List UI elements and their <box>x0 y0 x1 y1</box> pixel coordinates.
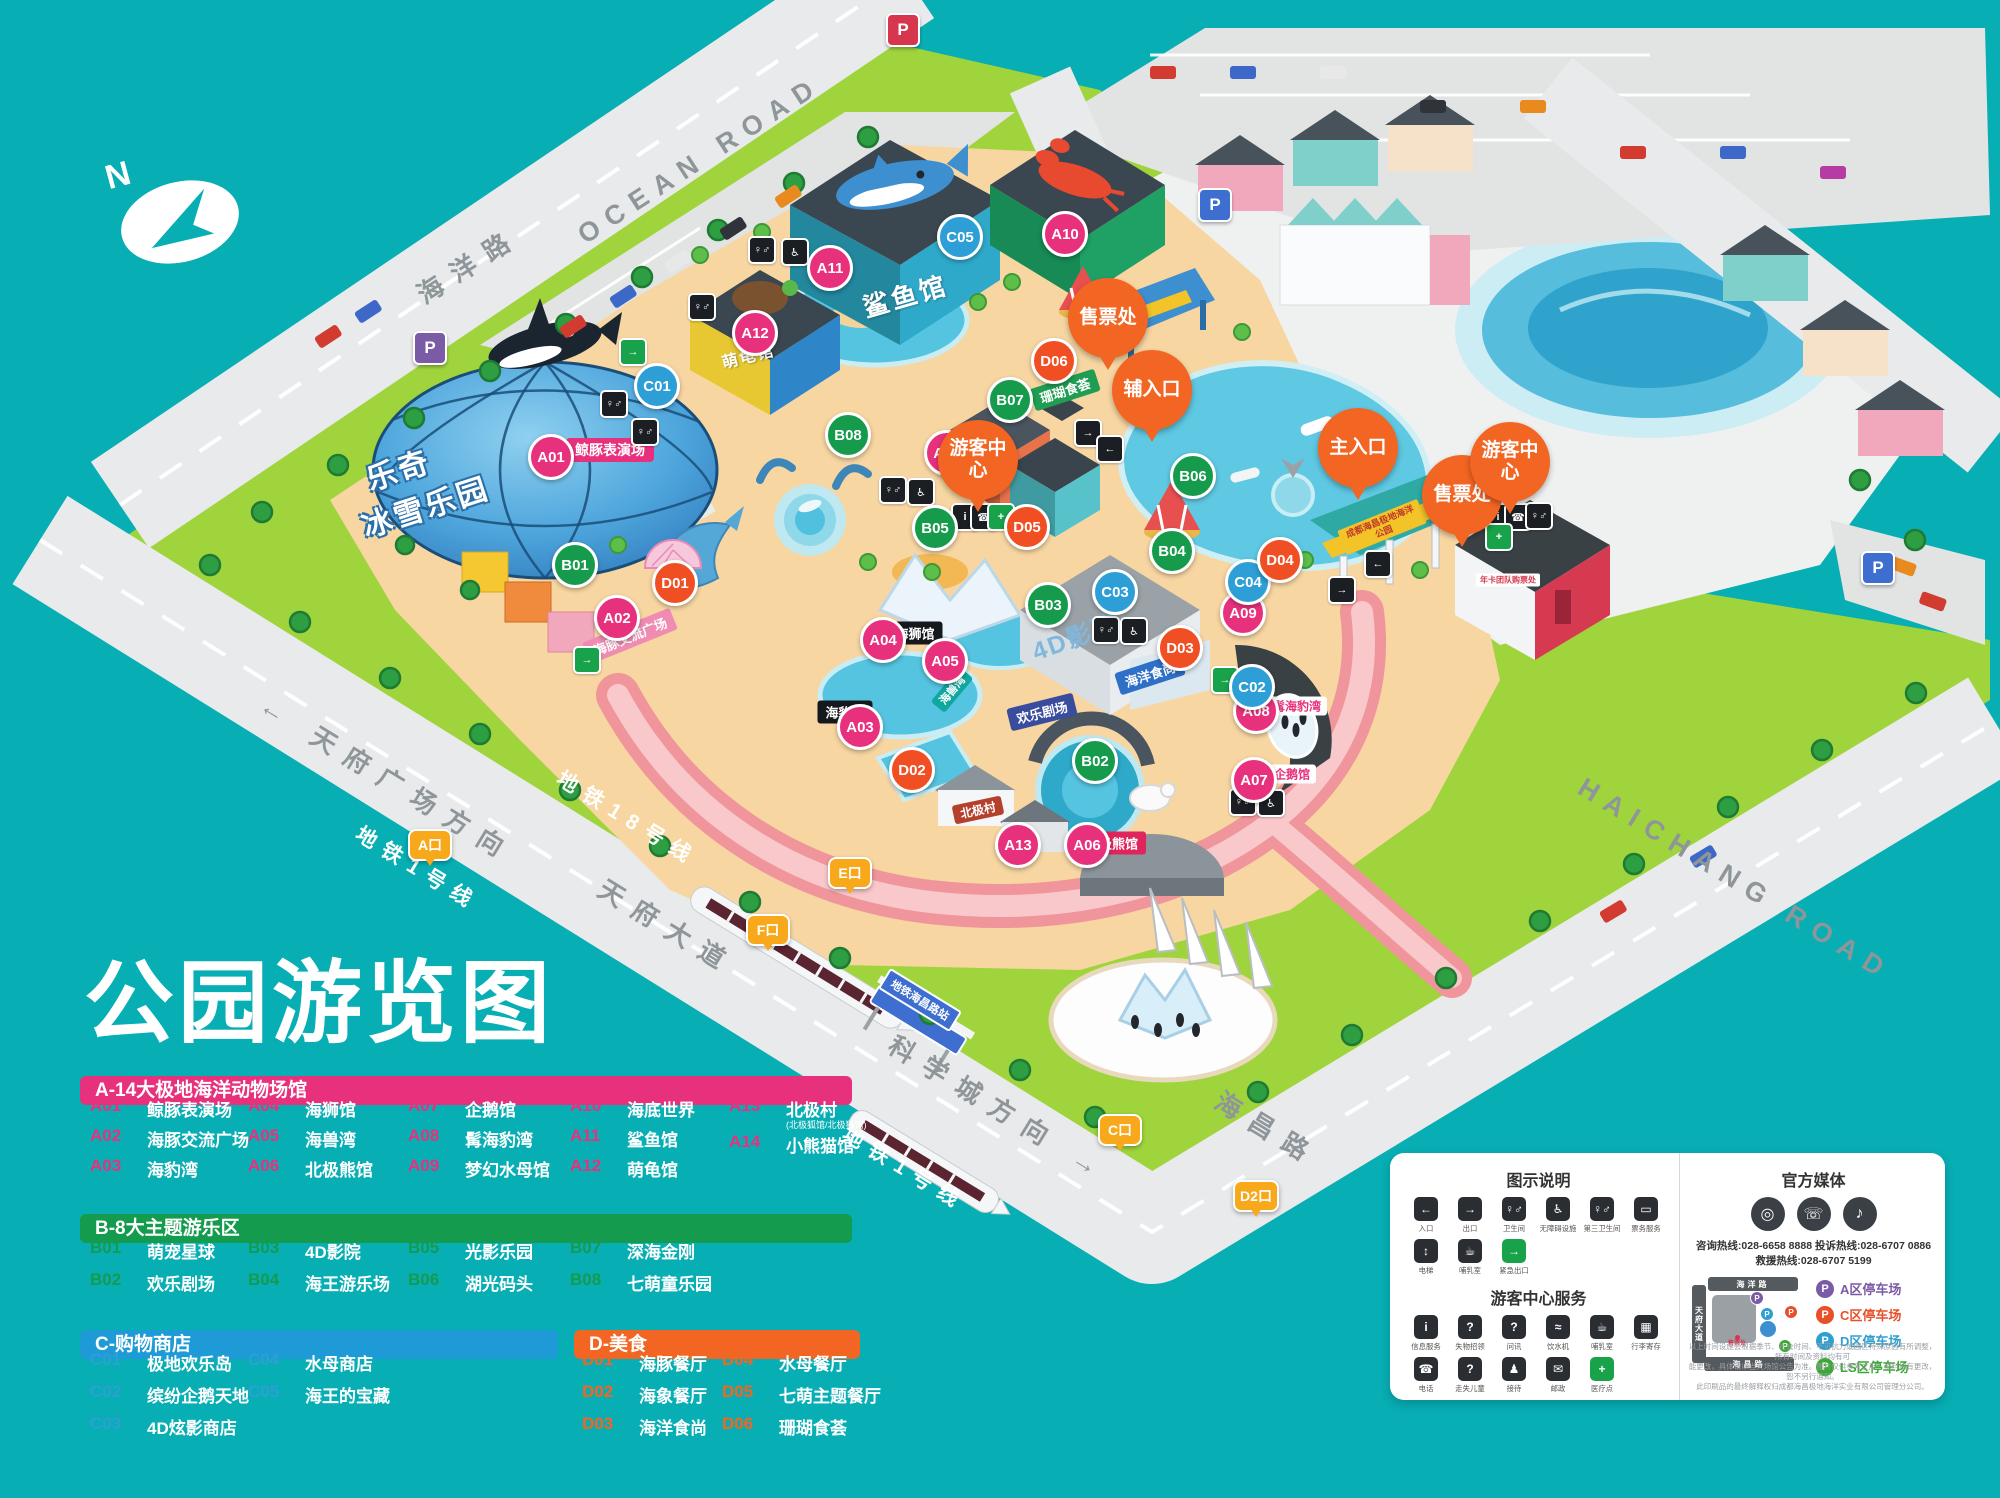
map-marker[interactable]: B04 <box>1149 528 1195 574</box>
legend-item: D01 海豚餐厅 <box>582 1350 707 1375</box>
legend-item: A11 鲨鱼馆 <box>570 1126 678 1151</box>
legend-item: A06 北极熊馆 <box>248 1156 373 1181</box>
legend-item: A03 海豹湾 <box>90 1156 198 1181</box>
map-marker[interactable]: A02 <box>594 595 640 641</box>
legend-item: D02 海象餐厅 <box>582 1382 707 1407</box>
parking-row: P A区停车场 <box>1816 1279 1909 1298</box>
legend-item: A08 髯海豹湾 <box>408 1126 533 1151</box>
legend-icon-cell: ↕ 电梯 <box>1404 1239 1448 1276</box>
service-icon-cell: + 医疗点 <box>1580 1357 1624 1394</box>
legend-item: A05 海兽湾 <box>248 1126 356 1151</box>
minimap-road-top: 海洋路 <box>1708 1277 1798 1291</box>
legend-item: A09 梦幻水母馆 <box>408 1156 550 1181</box>
map-marker[interactable]: A03 <box>837 704 883 750</box>
facility-icon: ♀♂ <box>631 418 659 446</box>
legend-icon-cell: ← 入口 <box>1404 1197 1448 1234</box>
legend-item: A14 小熊猫馆 <box>729 1132 854 1157</box>
map-marker[interactable]: B08 <box>825 412 871 458</box>
service-icon-cell: ☎ 电话 <box>1404 1357 1448 1394</box>
service-icon-cell: ≈ 饮水机 <box>1536 1315 1580 1352</box>
park-map: N OCEAN ROAD海洋路HAICHANG ROAD海昌路← 天府广场方向地… <box>0 0 2000 1498</box>
legend-item: B05 光影乐园 <box>408 1238 533 1263</box>
legend-icon-cell: ♿ 无障碍设施 <box>1536 1197 1580 1234</box>
facility-icon: ♀♂ <box>1525 502 1553 530</box>
legend-icons-grid: ← 入口 → 出口 ♀♂ 卫生间 ♿ 无障碍设施 ♀♂ 第三卫生间 ▭ 票务服务 <box>1404 1197 1673 1281</box>
social-icon[interactable]: ☏ <box>1797 1197 1831 1231</box>
map-marker[interactable]: C02 <box>1229 664 1275 710</box>
pictogram-icon: ✉ <box>1546 1357 1570 1381</box>
penguin-island <box>1051 960 1275 1080</box>
legend-item: A01 鲸豚表演场 <box>90 1096 232 1121</box>
poi-balloon[interactable]: 辅入口 <box>1112 350 1192 430</box>
legend-item: B03 4D影院 <box>248 1238 361 1263</box>
pictogram-icon: ▦ <box>1634 1315 1658 1339</box>
facility-icon: ♀♂ <box>748 236 776 264</box>
legend-item: B07 深海金刚 <box>570 1238 695 1263</box>
parking-p-icon: P <box>1816 1280 1834 1298</box>
pictogram-icon: ↕ <box>1414 1239 1438 1263</box>
legend-item: A04 海狮馆 <box>248 1096 356 1121</box>
legend-icon-cell: ♀♂ 第三卫生间 <box>1580 1197 1624 1234</box>
service-icon-cell: ☕ 哺乳室 <box>1580 1315 1624 1352</box>
legend-item: C02 缤纷企鹅天地 <box>90 1382 249 1407</box>
metro-exit-badge[interactable]: D2口 <box>1233 1180 1279 1212</box>
facility-icon: ← <box>1364 550 1392 578</box>
facility-icon: ♀♂ <box>879 476 907 504</box>
legend-item: D05 七萌主题餐厅 <box>722 1382 881 1407</box>
legend-item: A02 海豚交流广场 <box>90 1126 249 1151</box>
map-marker[interactable]: B01 <box>552 542 598 588</box>
media-title: 官方媒体 <box>1692 1167 1935 1191</box>
poi-balloon[interactable]: 主入口 <box>1318 408 1398 488</box>
pictogram-icon: ☕ <box>1590 1315 1614 1339</box>
facility-icon: ♿ <box>1120 617 1148 645</box>
legend-item: C01 极地欢乐岛 <box>90 1350 232 1375</box>
map-marker[interactable]: C05 <box>937 214 983 260</box>
pictogram-icon: ▭ <box>1634 1197 1658 1221</box>
parking-sign: P <box>886 13 920 47</box>
legend-item: B01 萌宠星球 <box>90 1238 215 1263</box>
map-marker[interactable]: C03 <box>1092 569 1138 615</box>
pictogram-icon: ☎ <box>1414 1357 1438 1381</box>
page-title: 公园游览图 <box>84 930 554 1060</box>
service-icon-cell: ▦ 行李寄存 <box>1624 1315 1668 1352</box>
pictogram-icon: i <box>1414 1315 1438 1339</box>
pictogram-icon: ♀♂ <box>1590 1197 1614 1221</box>
map-marker[interactable]: B06 <box>1170 453 1216 499</box>
pictogram-icon: ← <box>1414 1197 1438 1221</box>
poi-balloon[interactable]: 售票处 <box>1068 278 1148 358</box>
legend-item: B04 海王游乐场 <box>248 1270 390 1295</box>
service-icon-cell: ? 走失儿童 <box>1448 1357 1492 1394</box>
poi-balloon[interactable]: 游客中心 <box>938 420 1018 500</box>
pictogram-icon: ? <box>1502 1315 1526 1339</box>
map-marker[interactable]: D04 <box>1257 537 1303 583</box>
map-marker[interactable]: A12 <box>732 310 778 356</box>
map-marker[interactable]: A04 <box>860 617 906 663</box>
map-marker[interactable]: A07 <box>1231 757 1277 803</box>
minimap-parking-a: P <box>1750 1291 1764 1305</box>
facility-icon: ♀♂ <box>688 293 716 321</box>
metro-exit-badge[interactable]: E口 <box>828 857 872 889</box>
service-icon-cell: ? 失物招领 <box>1448 1315 1492 1352</box>
legend-item: D06 珊瑚食荟 <box>722 1414 847 1439</box>
minimap-parking-c: P <box>1784 1305 1798 1319</box>
legend-item: D03 海洋食尚 <box>582 1414 707 1439</box>
parking-sign: P <box>1198 188 1232 222</box>
pictogram-icon: ? <box>1458 1315 1482 1339</box>
facility-icon: + <box>1485 523 1513 551</box>
legend-icon-cell: ♀♂ 卫生间 <box>1492 1197 1536 1234</box>
legend-icon-cell: → 出口 <box>1448 1197 1492 1234</box>
map-marker[interactable]: B03 <box>1025 582 1071 628</box>
info-panel: 图示说明 ← 入口 → 出口 ♀♂ 卫生间 ♿ 无障碍设施 ♀♂ 第三卫生间 <box>1390 1153 1945 1400</box>
map-marker[interactable]: B07 <box>987 377 1033 423</box>
pictogram-icon: ♀♂ <box>1502 1197 1526 1221</box>
service-icon-cell: i 信息服务 <box>1404 1315 1448 1352</box>
parking-sign: P <box>413 331 447 365</box>
map-marker[interactable]: A05 <box>922 638 968 684</box>
pictogram-icon: ♿ <box>1546 1197 1570 1221</box>
metro-exit-badge[interactable]: A口 <box>408 829 452 861</box>
pictogram-icon: → <box>1502 1239 1526 1263</box>
services-title: 游客中心服务 <box>1404 1285 1673 1309</box>
social-icons-row: ◎☏♪ <box>1692 1197 1935 1231</box>
info-panel-left: 图示说明 ← 入口 → 出口 ♀♂ 卫生间 ♿ 无障碍设施 ♀♂ 第三卫生间 <box>1390 1153 1680 1400</box>
facility-icon: ← <box>1096 435 1124 463</box>
facility-icon: ♿ <box>907 478 935 506</box>
facility-icon: ♀♂ <box>600 390 628 418</box>
map-marker[interactable]: D01 <box>652 560 698 606</box>
service-icon-cell: ? 问讯 <box>1492 1315 1536 1352</box>
pictogram-icon: → <box>1458 1197 1482 1221</box>
legend-item: A12 萌龟馆 <box>570 1156 678 1181</box>
legend-item: B06 湖光码头 <box>408 1270 533 1295</box>
legend-item: C04 水母商店 <box>248 1350 373 1375</box>
legend-icons-title: 图示说明 <box>1404 1167 1673 1191</box>
minimap-parking-d: P <box>1760 1307 1774 1321</box>
legend-icon-cell: ☕ 哺乳室 <box>1448 1239 1492 1276</box>
pictogram-icon: ≈ <box>1546 1315 1570 1339</box>
facility-icon: ♿ <box>781 238 809 266</box>
legend-icon-cell: → 紧急出口 <box>1492 1239 1536 1276</box>
map-marker[interactable]: D03 <box>1157 625 1203 671</box>
map-marker[interactable]: D06 <box>1031 338 1077 384</box>
parking-row: P C区停车场 <box>1816 1305 1909 1324</box>
parking-sign: P <box>1861 551 1895 585</box>
map-marker[interactable]: A01 <box>528 434 574 480</box>
social-icon[interactable]: ◎ <box>1751 1197 1785 1231</box>
map-marker[interactable]: B05 <box>912 505 958 551</box>
metro-exit-badge[interactable]: F口 <box>746 914 790 946</box>
legend-item: A07 企鹅馆 <box>408 1096 516 1121</box>
hotline-1: 咨询热线:028-6658 8888 投诉热线:028-6707 0886 <box>1692 1239 1935 1254</box>
metro-exit-badge[interactable]: C口 <box>1098 1114 1142 1146</box>
hotline-2: 救援热线:028-6707 5199 <box>1692 1254 1935 1269</box>
info-panel-right: 官方媒体 ◎☏♪ 咨询热线:028-6658 8888 投诉热线:028-670… <box>1680 1153 1945 1400</box>
disclaimer: 以上时间设施会根据季节、社会时间、不可抗力或园区特殊原因有所调整，所有时间及资料… <box>1688 1342 1937 1392</box>
service-icons-grid: i 信息服务 ? 失物招领 ? 问讯 ≈ 饮水机 ☕ 哺乳室 ▦ 行李寄存 <box>1404 1315 1673 1399</box>
map-marker[interactable]: A13 <box>995 822 1041 868</box>
pictogram-icon: + <box>1590 1357 1614 1381</box>
facility-icon: ♀♂ <box>1092 616 1120 644</box>
legend-item: D04 水母餐厅 <box>722 1350 847 1375</box>
service-icon-cell: ✉ 邮政 <box>1536 1357 1580 1394</box>
legend-item: B08 七萌童乐园 <box>570 1270 712 1295</box>
map-marker[interactable]: C01 <box>634 363 680 409</box>
pictogram-icon: ☕ <box>1458 1239 1482 1263</box>
poi-balloon[interactable]: 游客中心 <box>1470 422 1550 502</box>
parking-p-icon: P <box>1816 1306 1834 1324</box>
legend-item: C05 海王的宝藏 <box>248 1382 390 1407</box>
map-marker[interactable]: B02 <box>1072 738 1118 784</box>
map-marker[interactable]: A10 <box>1042 211 1088 257</box>
legend-item: C03 4D炫影商店 <box>90 1414 237 1439</box>
legend-item: A10 海底世界 <box>570 1096 695 1121</box>
pictogram-icon: ? <box>1458 1357 1482 1381</box>
map-marker[interactable]: D05 <box>1004 504 1050 550</box>
map-marker[interactable]: A06 <box>1064 822 1110 868</box>
legend-item: A13 北极村(北极狐馆/北极狼馆) <box>729 1096 867 1130</box>
service-icon-cell: ♟ 接待 <box>1492 1357 1536 1394</box>
map-marker[interactable]: A11 <box>807 245 853 291</box>
facility-icon: → <box>619 338 647 366</box>
minimap-lake <box>1760 1321 1776 1337</box>
facility-icon: → <box>1328 576 1356 604</box>
legend-icon-cell: ▭ 票务服务 <box>1624 1197 1668 1234</box>
map-marker[interactable]: D02 <box>889 747 935 793</box>
map-sign: 年卡团队购票处 <box>1476 574 1540 587</box>
legend-item: B02 欢乐剧场 <box>90 1270 215 1295</box>
social-icon[interactable]: ♪ <box>1843 1197 1877 1231</box>
pictogram-icon: ♟ <box>1502 1357 1526 1381</box>
facility-icon: → <box>573 646 601 674</box>
